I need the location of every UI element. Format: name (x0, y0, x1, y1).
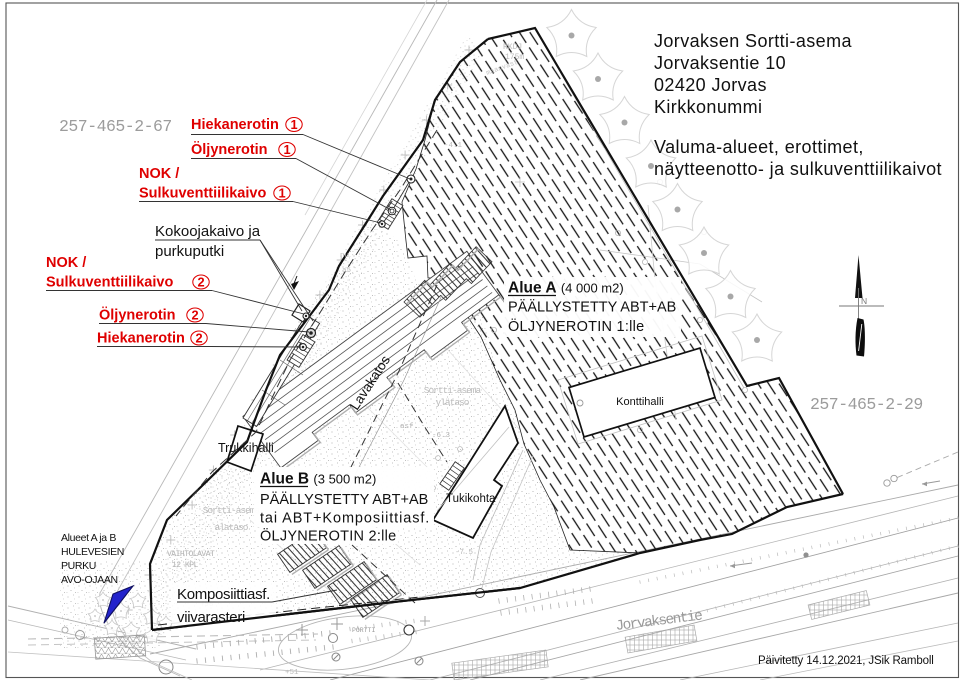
svg-text:Sortti-asema: Sortti-asema (203, 505, 261, 516)
svg-text:Jorvaksen Sortti-asema: Jorvaksen Sortti-asema (654, 31, 852, 51)
svg-text:PÄÄLLYSTETTY ABT+AB: PÄÄLLYSTETTY ABT+AB (508, 299, 676, 316)
svg-text:Kirkkonummi: Kirkkonummi (654, 97, 762, 117)
svg-text:N: N (861, 296, 867, 306)
svg-text:12 KPL: 12 KPL (172, 561, 199, 570)
svg-text:1: 1 (283, 142, 290, 157)
svg-text:Konttihalli: Konttihalli (616, 396, 664, 408)
svg-text:alataso: alataso (215, 522, 249, 533)
svg-text:1: 1 (290, 117, 297, 132)
svg-text:Sulkuventtiilikaivo: Sulkuventtiilikaivo (46, 275, 173, 291)
svg-text:-6.3: -6.3 (432, 432, 451, 440)
svg-text:Alue B (3 500 m2): Alue B (3 500 m2) (260, 471, 376, 488)
svg-text:Hiekanerotin: Hiekanerotin (97, 331, 185, 347)
svg-text:02420 Jorvas: 02420 Jorvas (654, 75, 767, 95)
svg-text:PURKU: PURKU (61, 560, 96, 572)
svg-text:nu: nu (340, 252, 349, 260)
svg-text:ÖLJYNEROTIN 1:lle: ÖLJYNEROTIN 1:lle (508, 317, 644, 335)
svg-text:Jorvaksentie 10: Jorvaksentie 10 (654, 53, 786, 73)
svg-text:2: 2 (197, 275, 204, 290)
svg-text:HULEVESIEN: HULEVESIEN (61, 546, 124, 558)
svg-text:Kokoojakaivo ja: Kokoojakaivo ja (155, 223, 261, 240)
svg-text:a5: a5 (342, 267, 352, 275)
svg-text:PÄÄLLYSTETTY ABT+AB: PÄÄLLYSTETTY ABT+AB (260, 491, 428, 508)
svg-text:-7.5: -7.5 (455, 549, 474, 557)
svg-text:AVO-OJAAN: AVO-OJAAN (61, 574, 118, 586)
svg-text:NOK /: NOK / (139, 166, 179, 182)
svg-text:2: 2 (191, 308, 198, 323)
svg-text:Öljynerotin: Öljynerotin (99, 307, 176, 324)
svg-text:Öljynerotin: Öljynerotin (191, 141, 268, 158)
svg-text:257-465-2-67: 257-465-2-67 (59, 117, 172, 136)
svg-text:-4.1: -4.1 (444, 142, 463, 150)
svg-text:VAIHTOLAVAT: VAIHTOLAVAT (167, 550, 215, 559)
svg-text:asf.: asf. (400, 423, 418, 431)
svg-text:tai ABT+Komposiittiasf.: tai ABT+Komposiittiasf. (260, 511, 430, 527)
svg-text:Valuma-alueet, erottimet,: Valuma-alueet, erottimet, (654, 137, 864, 157)
svg-text:NOK /: NOK / (46, 255, 86, 271)
svg-text:Alueet A ja B: Alueet A ja B (61, 532, 116, 544)
svg-text:Sulkuventtiilikaivo: Sulkuventtiilikaivo (139, 186, 266, 202)
svg-text:Päivitetty 14.12.2021, JSik Ra: Päivitetty 14.12.2021, JSik Ramboll (758, 655, 934, 667)
svg-text:ylätaso: ylätaso (436, 397, 470, 408)
svg-text:RKDJ: RKDJ (503, 43, 522, 52)
svg-text:2: 2 (195, 331, 202, 346)
svg-text:Hiekanerotin: Hiekanerotin (191, 117, 279, 133)
svg-text:Tukikohta: Tukikohta (446, 493, 496, 505)
svg-text:ÖLJYNEROTIN 2:lle: ÖLJYNEROTIN 2:lle (260, 527, 396, 545)
svg-text:257-465-2-29: 257-465-2-29 (810, 395, 923, 414)
svg-text:1: 1 (278, 186, 285, 201)
svg-text:purkuputki: purkuputki (155, 243, 224, 260)
svg-text:Komposiittiasf.: Komposiittiasf. (177, 586, 270, 603)
svg-text:Alue A (4 000 m2): Alue A (4 000 m2) (508, 280, 624, 297)
svg-text:Sortti-asema: Sortti-asema (424, 385, 482, 396)
svg-text:+51: +51 (285, 669, 299, 677)
svg-text:näytteenotto- ja sulkuventtiil: näytteenotto- ja sulkuventtiilikaivot (654, 159, 942, 179)
svg-text:PORTTI: PORTTI (352, 627, 376, 634)
